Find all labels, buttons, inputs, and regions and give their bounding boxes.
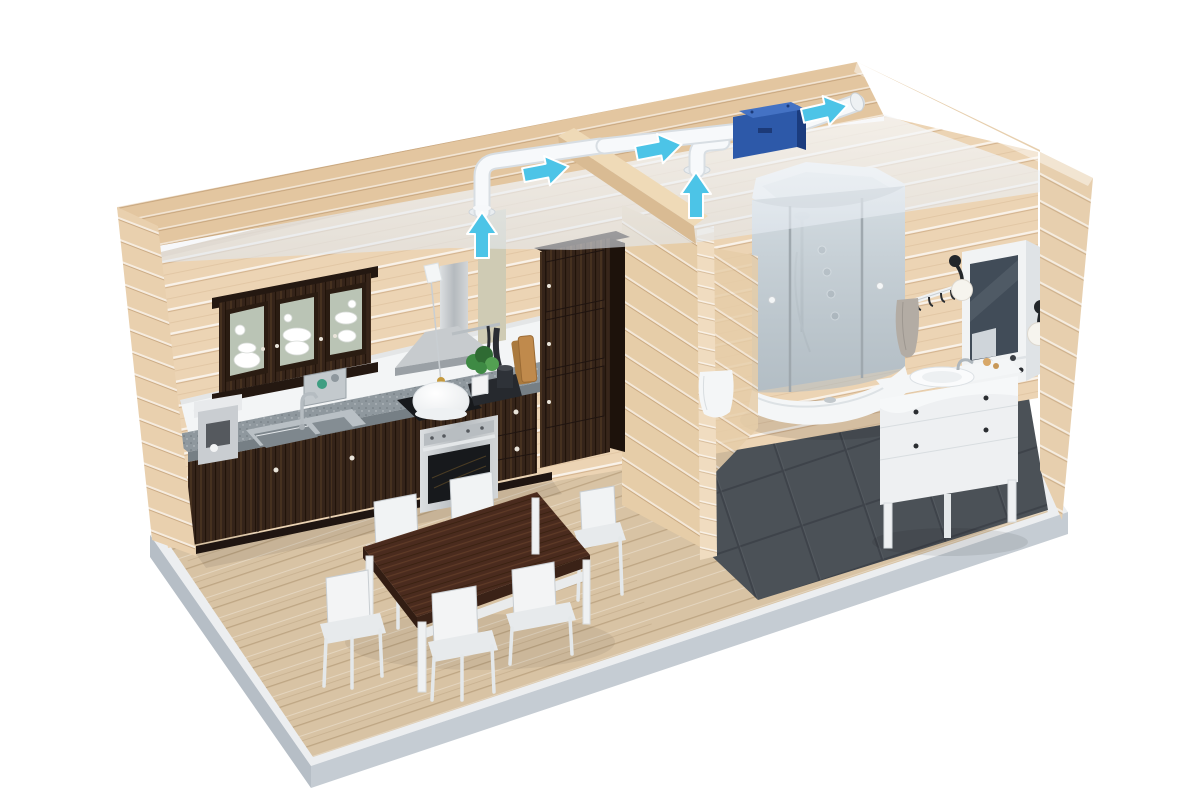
shower-drain [824,397,836,403]
black-mug-top [497,365,513,371]
soap-bottle-small [993,363,999,369]
hanging-utensil [488,326,489,350]
plant-pot [472,375,488,396]
fan-screw1 [751,111,754,114]
tall-cabinet-side [610,238,625,452]
coffee-cup [210,444,218,452]
vanity-leg-left [884,503,892,548]
toilet [699,370,734,418]
tall-cabinet [534,231,630,468]
vanity-leg-mid [944,494,951,538]
vanity-basin-inner [922,371,962,383]
pendant-dome-rim [415,408,467,420]
rack-bottle [331,374,339,382]
kitchen-diffuser-top [473,205,491,211]
fan-screw2 [787,105,790,108]
shower-handle-left [769,297,776,304]
tall-cabinet-front [540,238,610,468]
fan-latch [758,128,772,133]
render-canvas [0,0,1200,799]
faucet-base [299,424,305,430]
sconce-left-globe [952,280,973,301]
soap-bottle [983,358,991,366]
ventilation-cutaway-scene [0,0,1200,799]
coffee-slot [206,420,230,448]
green-cup [317,379,327,389]
shelf-bottle [1010,355,1016,361]
shower-handle-right [877,283,884,290]
coffee-machine [194,394,242,465]
vanity-leg-right [1008,480,1016,522]
